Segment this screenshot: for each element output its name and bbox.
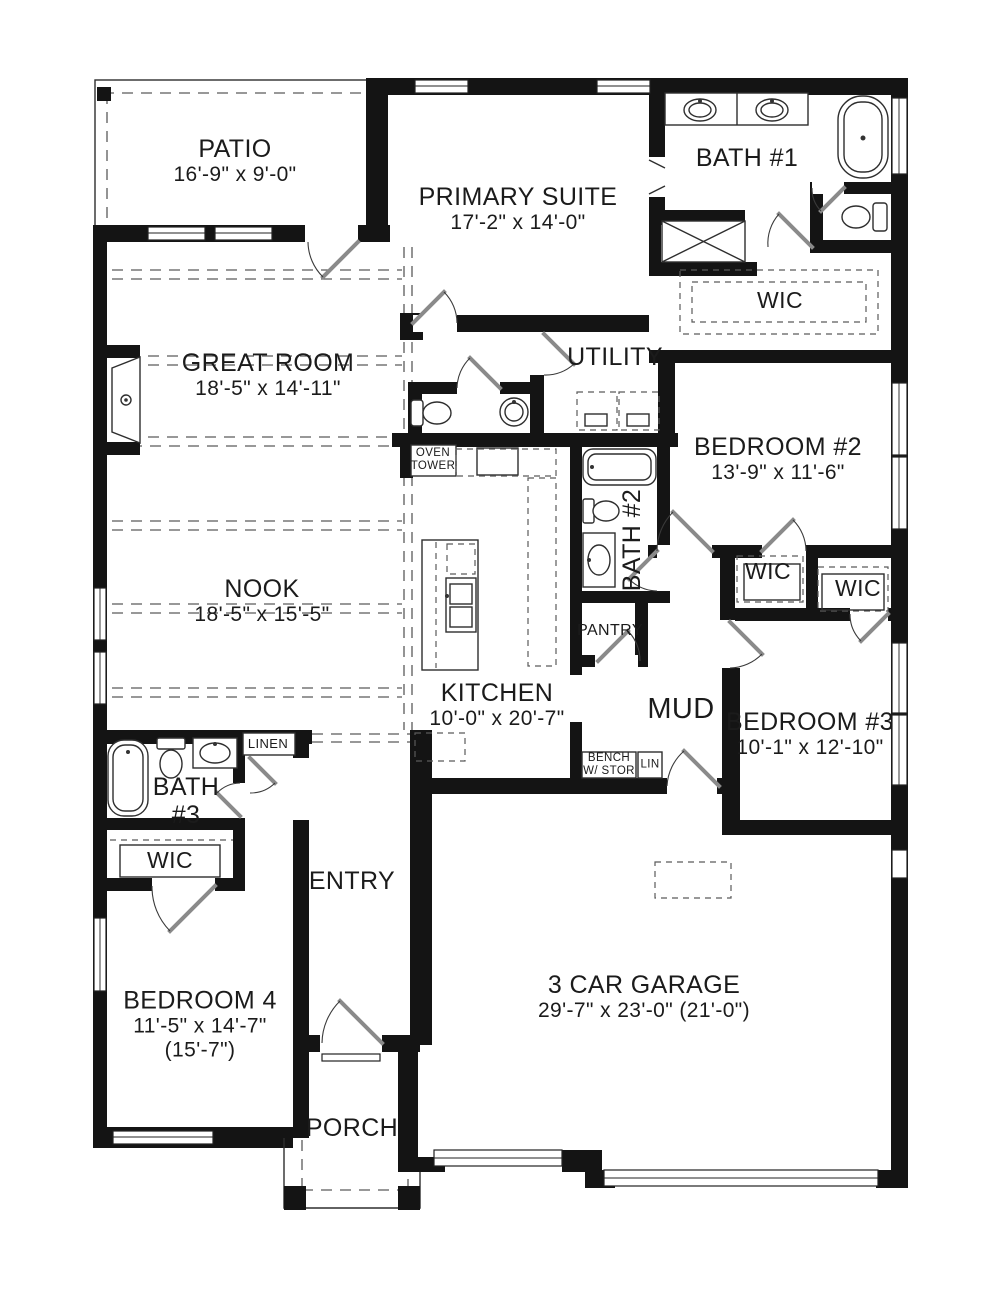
room-label-wic-bedroom-4: WIC xyxy=(147,848,193,874)
window xyxy=(892,98,907,174)
bathtub-fixture xyxy=(838,96,888,178)
room-label-wic-bedroom-2: WIC xyxy=(745,559,791,585)
window xyxy=(892,457,907,529)
window xyxy=(215,227,272,240)
kitchen-island-fixture xyxy=(422,540,478,670)
room-label-primary-suite: PRIMARY SUITE 17'-2" x 14'-0" xyxy=(419,183,618,235)
room-label-bath-2: BATH #2 xyxy=(618,489,646,591)
window xyxy=(892,715,907,785)
room-label-patio: PATIO 16'-9" x 9'-0" xyxy=(173,135,296,187)
room-label-bedroom-3: BEDROOM #3 10'-1" x 12'-10" xyxy=(726,708,894,760)
label-linen: LINEN xyxy=(248,737,288,751)
door xyxy=(768,214,812,247)
label-lin: LIN xyxy=(640,758,659,771)
room-label-kitchen: KITCHEN 10'-0" x 20'-7" xyxy=(429,679,564,731)
window xyxy=(94,652,106,704)
label-bench: BENCH W/ STOR xyxy=(583,752,635,778)
room-label-bedroom-2: BEDROOM #2 13'-9" x 11'-6" xyxy=(694,433,862,485)
door xyxy=(250,758,275,793)
entry-header xyxy=(312,734,410,742)
room-label-mud: MUD xyxy=(647,693,714,725)
front-door-sill xyxy=(322,1054,380,1061)
room-label-porch: PORCH xyxy=(306,1114,398,1142)
room-label-wic-bedroom-3: WIC xyxy=(835,576,881,602)
room-label-great-room: GREAT ROOM 18'-5" x 14'-11" xyxy=(182,349,355,401)
washer-dryer-outline xyxy=(577,392,659,430)
room-label-garage: 3 CAR GARAGE 29'-7" x 23'-0" (21'-0") xyxy=(538,971,750,1023)
room-label-bedroom-4: BEDROOM 4 11'-5" x 14'-7" (15'-7") xyxy=(123,986,277,1061)
toilet-fixture xyxy=(157,738,185,778)
window xyxy=(94,918,106,991)
window xyxy=(94,588,106,640)
toilet-fixture xyxy=(583,499,619,523)
room-label-utility: UTILITY xyxy=(567,343,663,371)
pedestal-sink-fixture xyxy=(500,398,528,426)
door xyxy=(308,242,358,277)
garage-door xyxy=(434,1150,562,1166)
window xyxy=(148,227,205,240)
bathtub-fixture xyxy=(108,740,148,816)
sink-fixture xyxy=(193,738,237,768)
ceiling-line-1 xyxy=(112,270,402,279)
label-oven-tower: OVEN TOWER xyxy=(411,447,456,473)
toilet-fixture xyxy=(842,203,887,231)
ceiling-line-6 xyxy=(112,688,402,697)
window xyxy=(892,383,907,455)
window xyxy=(892,643,907,713)
door xyxy=(152,886,215,931)
shower-fixture xyxy=(662,221,745,262)
room-label-pantry: PANTRY xyxy=(577,622,643,640)
window xyxy=(597,80,650,93)
room-label-primary-wic: WIC xyxy=(757,288,803,314)
room-label-nook: NOOK 18'-5" x 15'-5" xyxy=(194,575,329,627)
window xyxy=(415,80,468,93)
room-label-entry: ENTRY xyxy=(309,867,395,895)
floor-plan: PATIO 16'-9" x 9'-0" PRIMARY SUITE 17'-2… xyxy=(0,0,1000,1310)
sink-fixture xyxy=(583,533,615,587)
ceiling-line-3 xyxy=(112,437,402,446)
water-heater-outline xyxy=(655,862,731,898)
room-label-bath-1: BATH #1 xyxy=(696,144,798,172)
bathtub-fixture xyxy=(583,449,656,485)
window xyxy=(892,850,907,878)
ceiling-line-4 xyxy=(112,521,402,530)
double-vanity-fixture xyxy=(665,93,808,125)
fireplace-fixture xyxy=(112,357,140,443)
window xyxy=(113,1131,213,1144)
room-label-bath-3: BATH #3 xyxy=(153,773,219,829)
cooktop-cabinet xyxy=(477,448,518,475)
toilet-fixture xyxy=(411,400,451,426)
garage-door xyxy=(604,1170,878,1186)
